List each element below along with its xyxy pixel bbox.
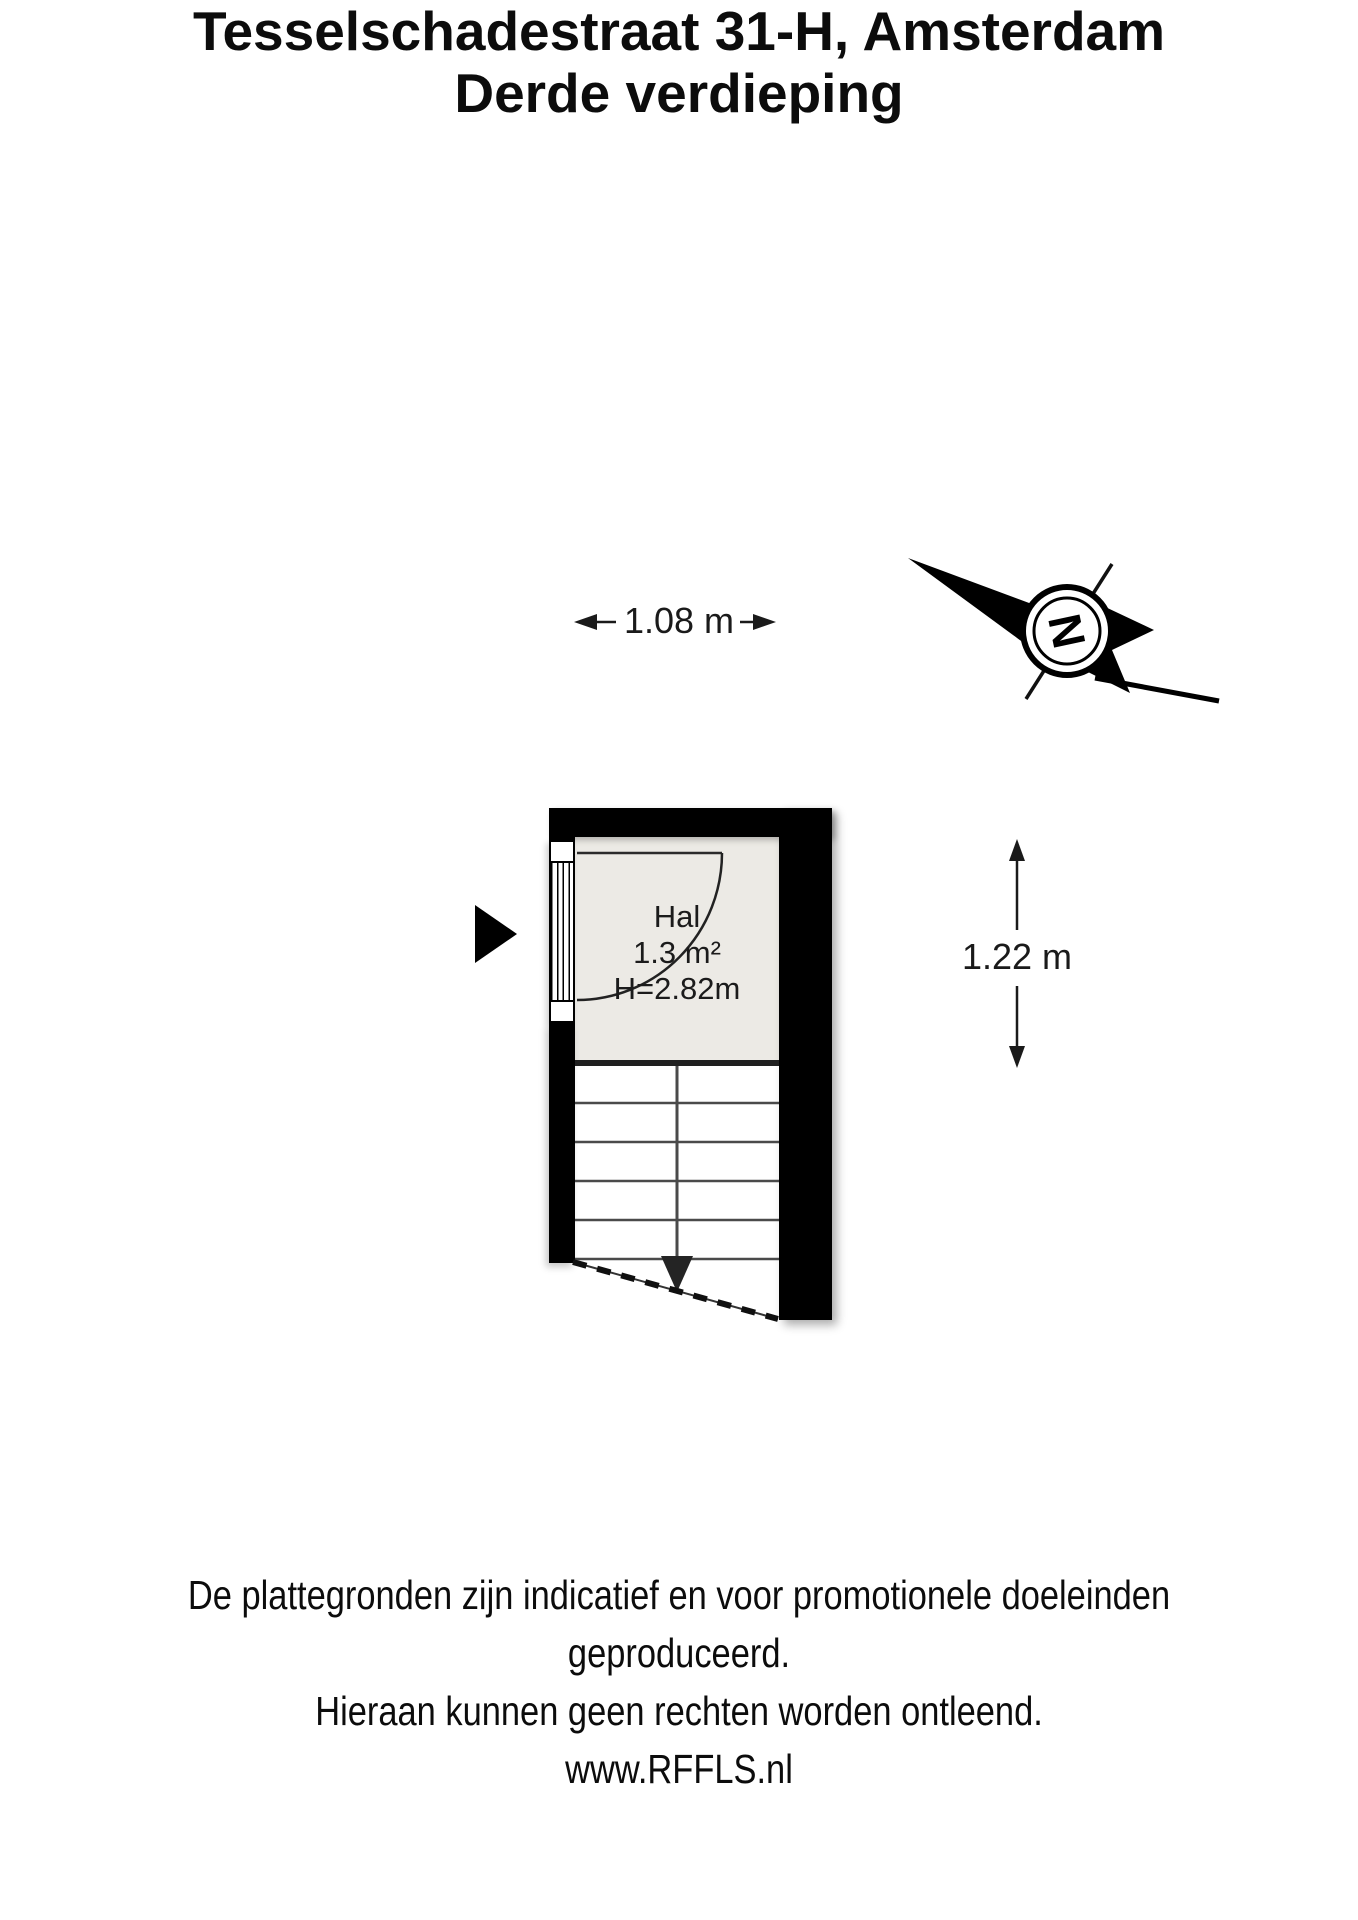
north-compass-icon: N — [908, 558, 1219, 701]
compass-inner-ring — [1034, 598, 1100, 664]
footer-line-1: De plattegronden zijn indicatief en voor… — [109, 1566, 1250, 1682]
compass-star-point — [1072, 596, 1154, 693]
door-frame-top — [551, 842, 573, 863]
door-frame-bottom — [551, 1000, 573, 1021]
wall-left-lower — [549, 1023, 575, 1263]
floorplan-page: Tesselschadestraat 31-H, Amsterdam Derde… — [0, 0, 1358, 1920]
footer-website: www.RFFLS.nl — [109, 1740, 1250, 1798]
wall-right — [779, 808, 832, 1320]
compass-outer-ring — [1023, 587, 1111, 675]
wall-left-upper — [549, 808, 575, 840]
room-name: Hal — [575, 899, 779, 935]
footer-disclaimer: De plattegronden zijn indicatief en voor… — [0, 1566, 1358, 1798]
entrance-arrow-icon — [475, 905, 517, 963]
width-dimension-label: 1.08 m — [614, 602, 744, 640]
room-ceiling-height: H=2.82m — [575, 971, 779, 1007]
door-leaf-slats — [551, 863, 573, 1000]
page-title: Tesselschadestraat 31-H, Amsterdam Derde… — [0, 0, 1358, 124]
page-title-address: Tesselschadestraat 31-H, Amsterdam — [0, 0, 1358, 62]
compass-north-letter: N — [1038, 609, 1096, 652]
page-title-floor: Derde verdieping — [0, 62, 1358, 124]
stairwell-area — [575, 1066, 779, 1320]
compass-needle — [908, 558, 1058, 668]
room-area: 1.3 m² — [575, 935, 779, 971]
height-dimension-label: 1.22 m — [947, 938, 1087, 976]
entry-door-panel — [549, 840, 575, 1023]
compass-axis-tick — [1026, 564, 1112, 699]
room-stairs-divider — [575, 1060, 779, 1066]
room-label: Hal 1.3 m² H=2.82m — [575, 899, 779, 1007]
compass-tail-line — [1095, 678, 1219, 701]
footer-line-2: Hieraan kunnen geen rechten worden ontle… — [109, 1682, 1250, 1740]
